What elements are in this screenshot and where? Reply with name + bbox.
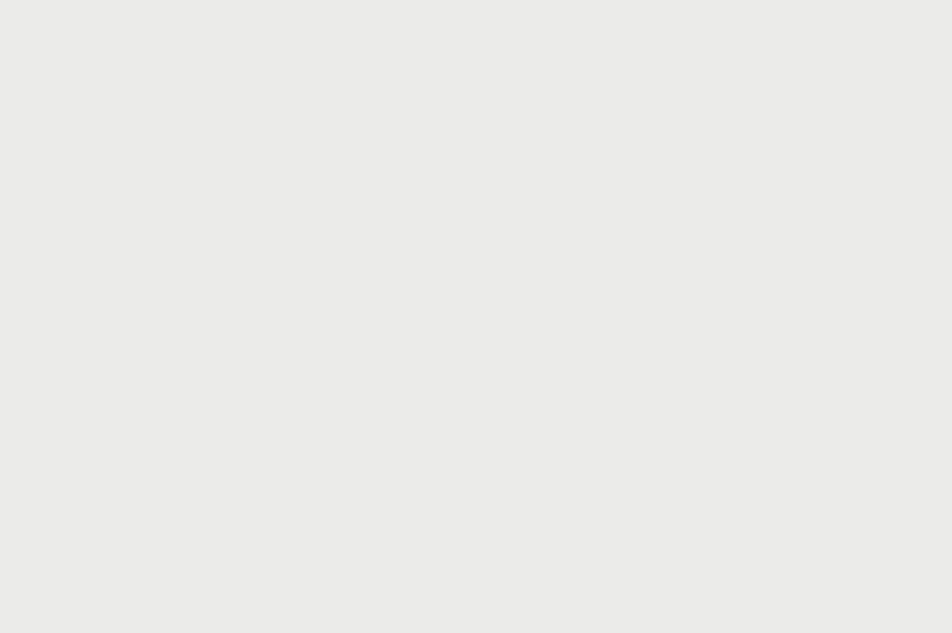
map-svg[interactable] (0, 0, 952, 633)
map-canvas[interactable] (0, 0, 952, 633)
